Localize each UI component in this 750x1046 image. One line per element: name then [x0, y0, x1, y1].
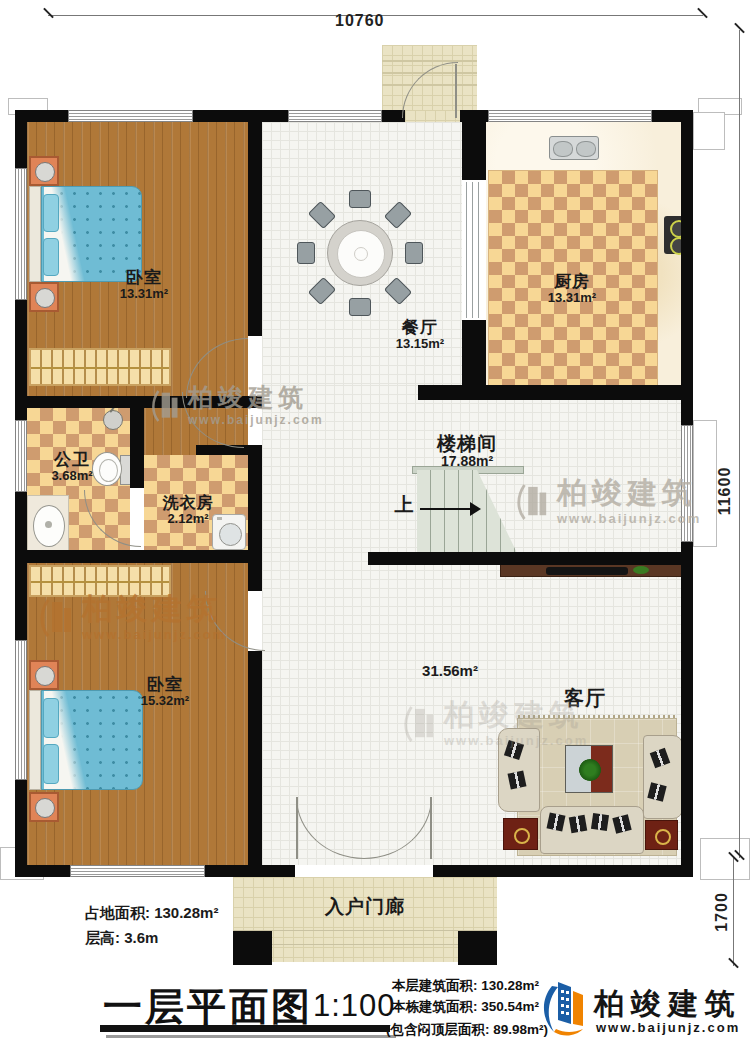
wall-segment — [130, 408, 144, 488]
building-area-line: 本栋建筑面积: 350.54m² — [392, 998, 539, 1016]
lamp-icon — [35, 798, 55, 818]
exterior-platform — [693, 112, 725, 150]
wall-segment — [193, 110, 288, 122]
wall-segment — [248, 563, 262, 591]
wall-segment — [248, 651, 262, 877]
wall-segment — [15, 492, 27, 640]
room-label-stair: 楼梯间 17.88m² — [412, 433, 522, 470]
sofa-pillow — [508, 771, 527, 790]
bed-pillow — [43, 698, 59, 738]
dining-chair — [297, 242, 315, 264]
side-table — [645, 820, 678, 850]
brand-name: 柏竣建筑 — [594, 984, 742, 1025]
porch-pillar — [458, 931, 497, 965]
bed-headboard — [29, 186, 41, 282]
wall-segment — [462, 122, 486, 180]
wall-segment — [460, 110, 488, 122]
wall-segment — [433, 865, 693, 877]
bed-pillow — [43, 194, 59, 232]
wall-segment — [418, 385, 693, 400]
stair-direction-line — [420, 508, 472, 510]
title-underline-shadow — [106, 1035, 396, 1038]
tv-icon — [546, 567, 628, 575]
bed-headboard — [29, 690, 41, 790]
sliding-door-track — [478, 182, 479, 318]
nightstand — [29, 792, 59, 822]
nightstand — [29, 282, 59, 312]
floor-height-text: 层高: 3.6m — [85, 930, 265, 947]
dining-chair — [349, 190, 371, 208]
shower-head-icon — [103, 410, 123, 430]
plan-scale: 1:100 — [313, 988, 396, 1024]
table-plant-icon — [579, 759, 601, 781]
bath-counter — [27, 495, 69, 553]
room-label-dining: 餐厅 13.15m² — [370, 318, 470, 352]
wardrobe — [29, 348, 171, 386]
window — [15, 168, 27, 300]
brand-logo-icon — [538, 978, 588, 1038]
dining-chair — [349, 298, 371, 316]
stair-up-label: 上 — [392, 494, 416, 515]
window — [681, 425, 693, 542]
dining-chair — [405, 242, 423, 264]
compass-ornament-icon — [514, 828, 530, 844]
brand-url: www.baijunjz.com — [596, 1020, 740, 1035]
room-label-bedroom1: 卧室 13.31m² — [94, 268, 194, 302]
room-area-living: 31.56m² — [405, 663, 495, 680]
side-table — [503, 818, 538, 850]
compass-ornament-icon — [655, 829, 671, 845]
room-label-bedroom2: 卧室 15.32m² — [115, 675, 215, 709]
room-label-bathroom: 公卫 3.68m² — [22, 450, 122, 484]
window — [288, 110, 382, 122]
sink-basin — [553, 141, 573, 157]
entry-door-leaf — [430, 797, 432, 859]
floor-area-line: 本层建筑面积: 130.28m² — [392, 977, 539, 995]
dimension-line-porch — [733, 858, 734, 966]
dimension-line-right — [739, 30, 740, 858]
window — [70, 865, 205, 877]
wall-segment — [15, 550, 262, 563]
wall-segment — [681, 542, 693, 877]
nightstand — [29, 660, 59, 690]
sink-drain — [45, 521, 52, 528]
rear-porch-step-line — [382, 60, 477, 62]
room-label-laundry: 洗衣房 2.12m² — [138, 494, 238, 526]
sofa-pillow — [591, 813, 609, 831]
wall-segment — [248, 110, 262, 336]
wall-segment — [248, 455, 262, 550]
sliding-door-track — [466, 182, 467, 318]
dimension-porch-value: 1700 — [713, 882, 731, 942]
room-label-porch: 入户门廊 — [315, 896, 415, 917]
wall-segment — [15, 780, 27, 877]
title-underline — [100, 1025, 390, 1032]
plant-icon — [633, 566, 649, 574]
sofa-pillow — [547, 813, 566, 832]
window — [488, 110, 652, 122]
wardrobe — [29, 565, 171, 597]
lamp-icon — [35, 288, 55, 308]
bed-pillow — [43, 744, 59, 784]
wall-segment — [681, 110, 693, 425]
wall-segment — [248, 396, 262, 408]
floor-plan-sheet: 上 — [0, 0, 750, 1046]
dimension-top-value: 10760 — [335, 12, 385, 30]
dim-tick — [697, 8, 708, 19]
lamp-icon — [35, 666, 55, 686]
dining-table-center — [354, 247, 368, 261]
stair-arrow-icon — [470, 502, 481, 516]
room-label-living: 客厅 — [550, 687, 620, 709]
dimension-right-value: 11600 — [716, 461, 734, 521]
wardrobe-rail — [31, 581, 169, 583]
rug-fringe — [518, 715, 676, 718]
lamp-icon — [35, 162, 55, 182]
wall-segment — [368, 552, 693, 565]
wall-segment — [15, 865, 70, 877]
rear-door-leaf — [455, 64, 457, 118]
wall-segment — [15, 110, 27, 168]
sofa-single — [498, 728, 540, 812]
sofa-pillow — [569, 815, 588, 834]
wardrobe-rail — [31, 367, 169, 369]
window — [15, 640, 27, 780]
dim-tick — [43, 8, 54, 19]
site-area-text: 占地面积: 130.28m² — [85, 905, 265, 922]
tv-console — [500, 563, 683, 577]
dining-table — [327, 220, 393, 286]
nightstand — [29, 156, 59, 186]
coffee-table — [565, 745, 613, 793]
sink-basin — [576, 141, 596, 157]
bed-pillow — [43, 238, 59, 276]
entry-door-leaf — [296, 797, 298, 859]
room-label-kitchen: 厨房 13.31m² — [522, 272, 622, 306]
kitchen-sink — [549, 136, 599, 160]
exterior-platform — [693, 420, 717, 547]
sliding-door-track — [472, 182, 473, 318]
attic-area-line: (包含闷顶层面积: 89.98m²) — [386, 1021, 548, 1039]
window — [68, 110, 193, 122]
